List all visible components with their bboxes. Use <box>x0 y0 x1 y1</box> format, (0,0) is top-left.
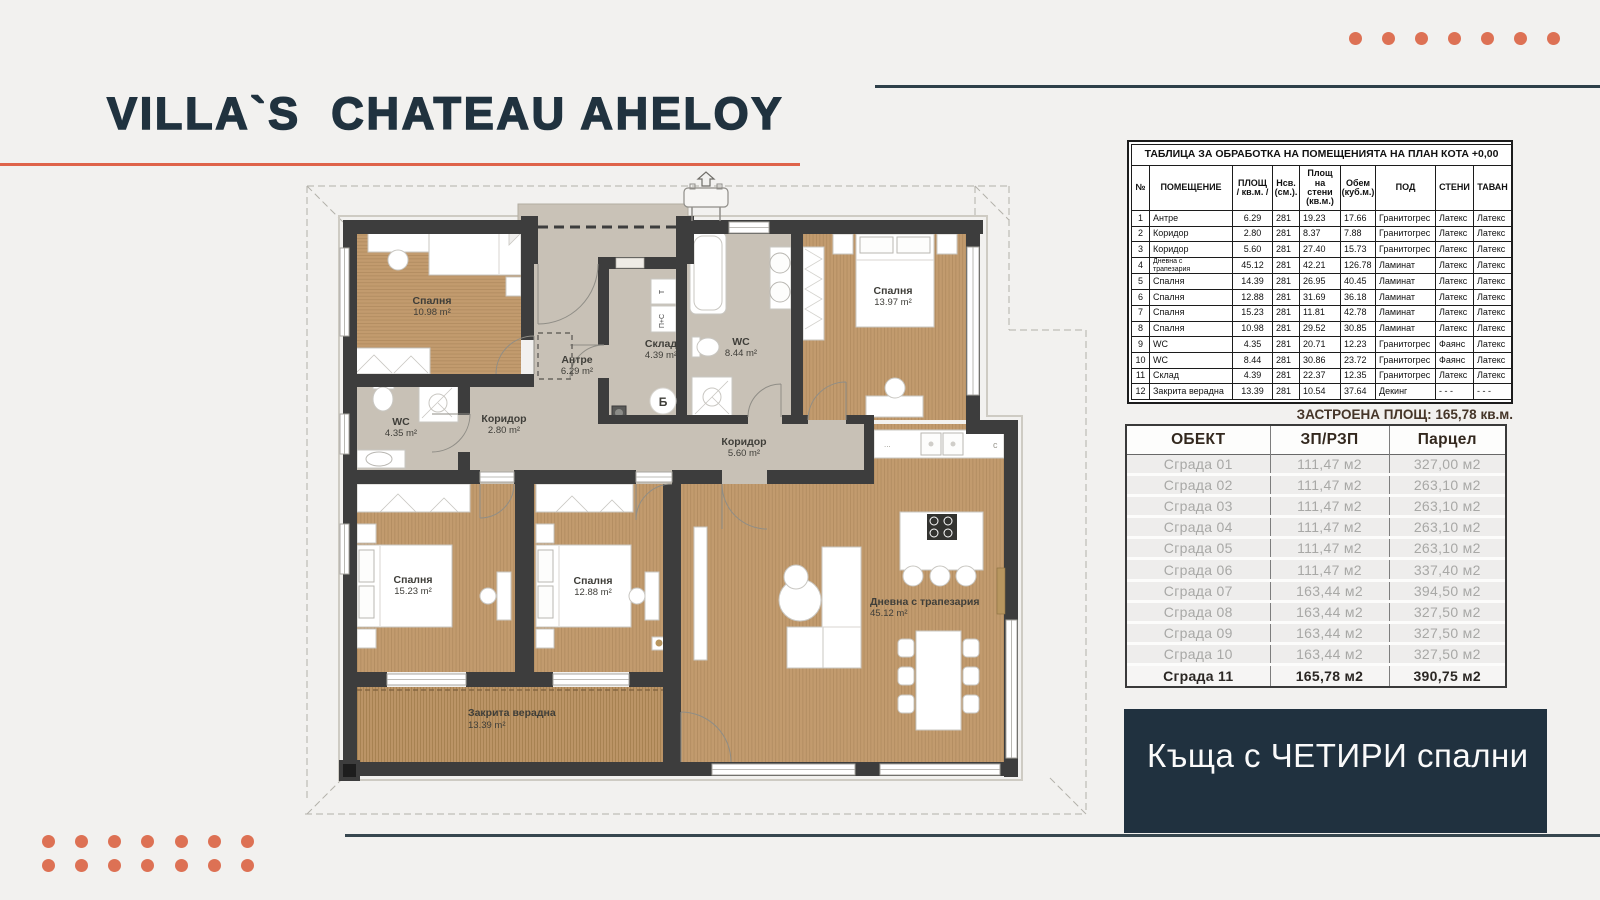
svg-text:10.98 m²: 10.98 m² <box>413 307 451 318</box>
svg-text:2.80 m²: 2.80 m² <box>488 425 520 436</box>
svg-text:Спалня: Спалня <box>574 575 613 587</box>
svg-text:12.88 m²: 12.88 m² <box>574 587 612 598</box>
svg-text:Антре: Антре <box>561 354 592 366</box>
svg-text:15.23 m²: 15.23 m² <box>394 586 432 597</box>
svg-text:45.12 m²: 45.12 m² <box>870 608 908 619</box>
svg-text:Спалня: Спалня <box>394 574 433 586</box>
svg-text:П+С: П+С <box>659 314 666 328</box>
svg-text:13.39 m²: 13.39 m² <box>468 720 506 731</box>
svg-text:WC: WC <box>392 416 410 428</box>
svg-text:4.39 m²: 4.39 m² <box>645 350 677 361</box>
svg-text:Коридор: Коридор <box>481 413 526 425</box>
svg-text:Дневна с трапезария: Дневна с трапезария <box>870 596 979 608</box>
svg-text:8.44 m²: 8.44 m² <box>725 348 757 359</box>
svg-text:...: ... <box>884 440 891 449</box>
svg-text:5.60 m²: 5.60 m² <box>728 448 760 459</box>
svg-text:Коридор: Коридор <box>721 436 766 448</box>
svg-text:13.97 m²: 13.97 m² <box>874 297 912 308</box>
svg-text:c: c <box>993 440 998 450</box>
svg-text:Склад: Склад <box>645 338 677 350</box>
svg-text:Спалня: Спалня <box>413 295 452 307</box>
svg-text:Б: Б <box>659 395 668 409</box>
svg-text:6.29 m²: 6.29 m² <box>561 366 593 377</box>
svg-text:WC: WC <box>732 336 750 348</box>
svg-text:Закрита верадна: Закрита верадна <box>468 707 556 719</box>
svg-text:4.35 m²: 4.35 m² <box>385 428 417 439</box>
svg-text:Спалня: Спалня <box>874 285 913 297</box>
svg-text:Т: Т <box>659 289 666 294</box>
